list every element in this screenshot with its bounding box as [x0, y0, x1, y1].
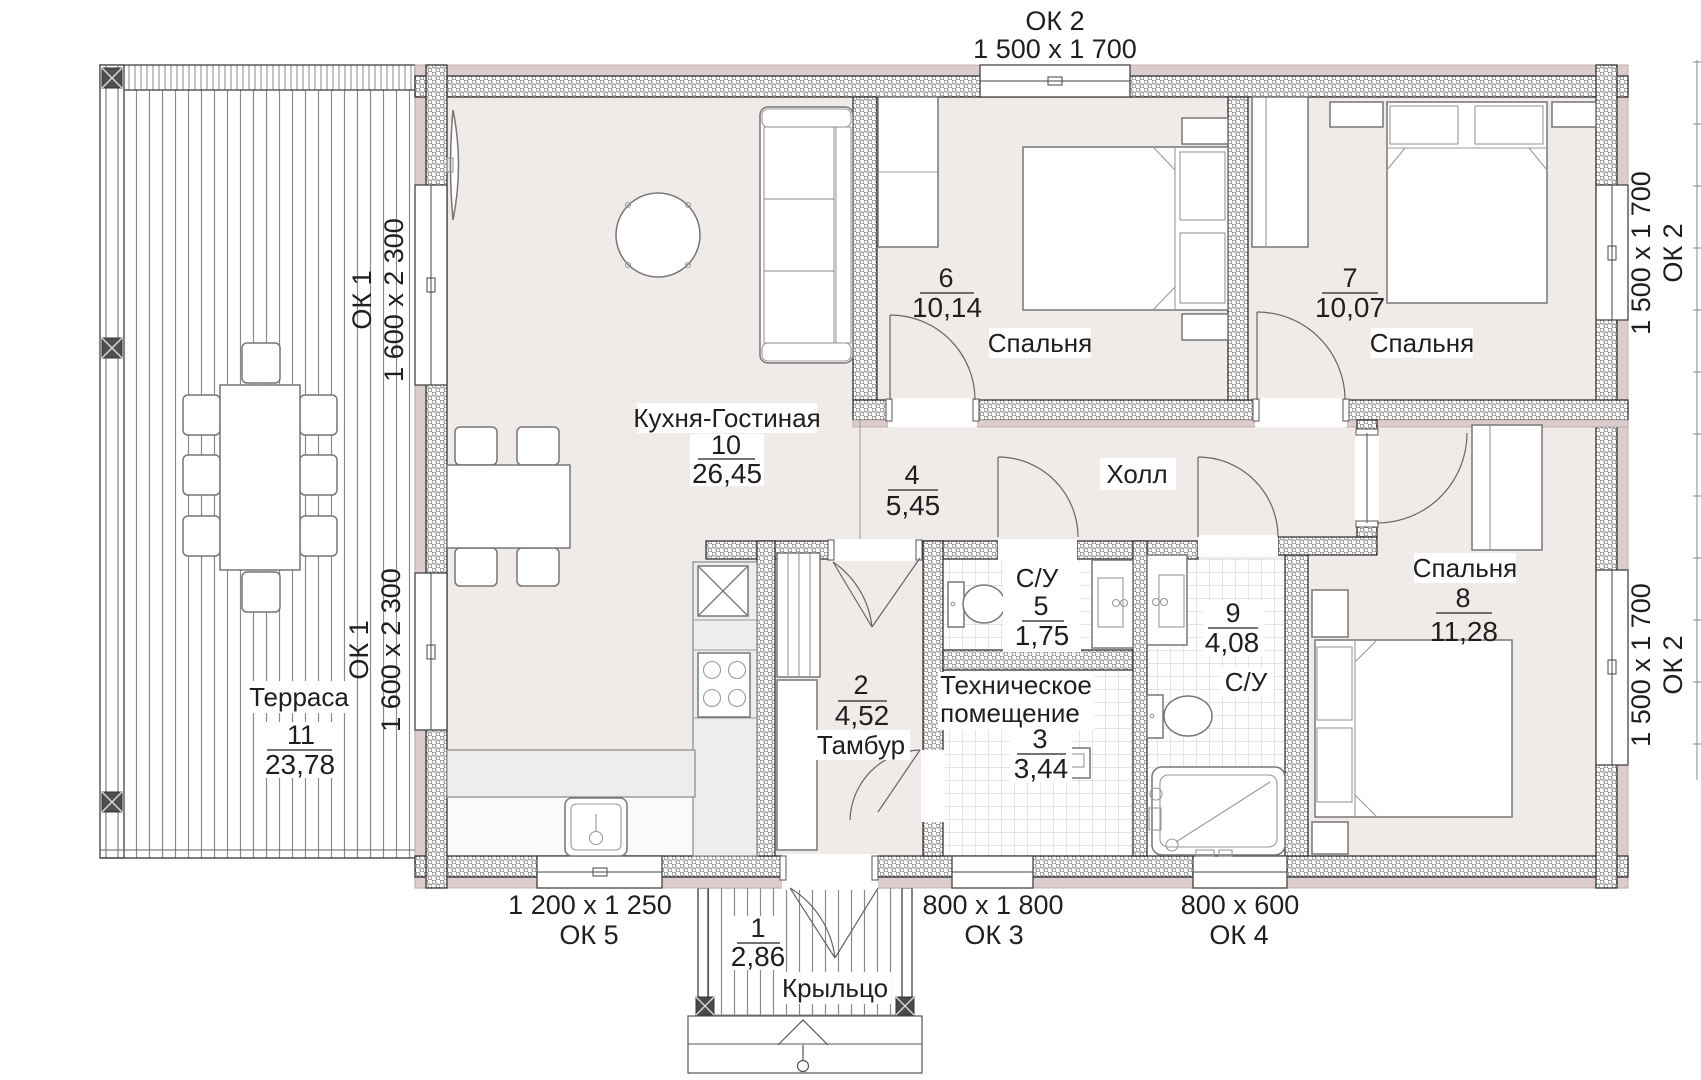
toilet-tank [1147, 695, 1163, 738]
room-number: 4 [904, 460, 919, 490]
room-number: 10 [711, 430, 741, 460]
wall-bathroom5-techroom [943, 650, 1133, 670]
window-size: 1 200 x 1 250 [508, 890, 672, 920]
window-label: ОК 2 [1658, 223, 1688, 282]
room-name: Спальня [1370, 328, 1474, 358]
terrace-left-beam [100, 65, 124, 858]
room-name: Спальня [988, 328, 1092, 358]
terrace-top-beam [100, 65, 415, 90]
chair [300, 516, 337, 556]
wardrobe [1472, 425, 1542, 550]
window-label: ОК 5 [559, 920, 618, 950]
room-number: 11 [287, 720, 315, 750]
chair [517, 548, 559, 586]
window-label: ОК 4 [1209, 920, 1268, 950]
room-area: 4,08 [1205, 627, 1260, 658]
bed [1387, 102, 1547, 303]
room-area: 23,78 [265, 749, 335, 780]
chair [183, 516, 220, 556]
room-area: 1,75 [1015, 620, 1070, 651]
window-size: 1 600 x 2 300 [376, 568, 406, 732]
room-number: 9 [1225, 598, 1240, 628]
window-size: 800 x 600 [1181, 890, 1300, 920]
room-name: С/У [1016, 563, 1059, 593]
nightstand [1182, 314, 1228, 340]
nightstand [1182, 118, 1228, 144]
room-name-line1: Техническое [940, 670, 1092, 700]
room-area: 26,45 [692, 458, 762, 489]
window-size: 1 600 x 2 300 [379, 218, 409, 382]
room-number: 3 [1032, 724, 1047, 754]
room-area: 10,14 [912, 292, 982, 323]
room-name-line2: помещение [940, 698, 1080, 728]
room-area: 10,07 [1315, 292, 1385, 323]
wardrobe [1252, 97, 1308, 247]
room-name: Крыльцо [782, 973, 888, 1003]
window-ok1-lower [415, 573, 447, 730]
chair [183, 395, 220, 435]
room-area: 5,45 [886, 490, 941, 521]
room-name: Кухня-Гостиная [633, 403, 820, 433]
toilet [1164, 696, 1212, 736]
window-label: ОК 1 [347, 270, 377, 329]
room-number: 7 [1342, 263, 1357, 293]
room-number: 8 [1455, 583, 1470, 613]
window-ok2-right-upper [1596, 185, 1628, 320]
window-size: 1 500 x 1 700 [1626, 171, 1656, 335]
table [220, 385, 300, 570]
room-area: 11,28 [1430, 616, 1498, 647]
chair [455, 427, 497, 465]
chair [242, 343, 280, 383]
chair [300, 395, 337, 435]
room-area: 4,52 [835, 700, 890, 731]
window-ok2-top [980, 65, 1130, 97]
chair [183, 455, 220, 495]
toilet-tank [948, 582, 964, 627]
window-ok3 [952, 856, 1033, 888]
round-table [616, 193, 700, 277]
tambour-wardrobe [777, 553, 820, 850]
chair [300, 455, 337, 495]
wall-bedrooms-hall [1347, 400, 1628, 420]
window-label: ОК 2 [1658, 635, 1688, 694]
table [447, 465, 570, 548]
nightstand [1330, 102, 1383, 127]
window-label: ОК 3 [964, 920, 1023, 950]
window-label: ОК 2 [1025, 6, 1084, 36]
kitchen-lower-cabinets [447, 750, 695, 797]
room-name: Холл [1106, 459, 1167, 489]
window-ok2-right-lower [1596, 570, 1628, 765]
room-number: 2 [853, 670, 868, 700]
sofa [760, 107, 853, 363]
room-name: Терраса [249, 682, 349, 712]
nightstand [1552, 102, 1596, 127]
wall-living-bedroom6 [853, 97, 877, 400]
nightstand [1312, 822, 1348, 854]
floor-plan-drawing: ОК 2 1 500 x 1 700 ОК 1 1 600 x 2 300 ОК… [0, 0, 1701, 1080]
room-name: Спальня [1413, 553, 1517, 583]
window-size: 800 x 1 800 [922, 890, 1063, 920]
window-ok5 [537, 856, 662, 888]
window-size: 1 500 x 1 700 [973, 34, 1137, 64]
terrace [100, 65, 415, 858]
dimension-ruler [1693, 60, 1701, 780]
bed [1023, 147, 1228, 310]
room-name: С/У [1225, 667, 1268, 697]
wall-bedroom6-bedroom7 [1228, 97, 1248, 400]
room-name: Тамбур [817, 730, 905, 760]
room-area: 2,86 [731, 941, 786, 972]
toilet [963, 585, 1005, 623]
chair [242, 572, 280, 612]
window-ok4 [1193, 856, 1287, 888]
room-number: 6 [938, 263, 953, 293]
chair [517, 427, 559, 465]
room-number: 5 [1033, 591, 1048, 621]
floor-plan: ОК 2 1 500 x 1 700 ОК 1 1 600 x 2 300 ОК… [0, 0, 1701, 1080]
room-number: 1 [750, 913, 765, 943]
shower-tray [1152, 767, 1285, 855]
wall-bathroom5-bathroom9 [1133, 541, 1147, 856]
window-label: ОК 1 [344, 620, 374, 679]
chair [455, 548, 497, 586]
wall-kitchen-tambour [757, 541, 775, 856]
window-ok1-upper [415, 185, 447, 385]
nightstand [1312, 590, 1348, 637]
wall-bathroom9-bedroom8 [1285, 553, 1308, 856]
room-area: 3,44 [1014, 753, 1069, 784]
porch-steps [688, 1016, 922, 1073]
window-size: 1 500 x 1 700 [1626, 583, 1656, 747]
